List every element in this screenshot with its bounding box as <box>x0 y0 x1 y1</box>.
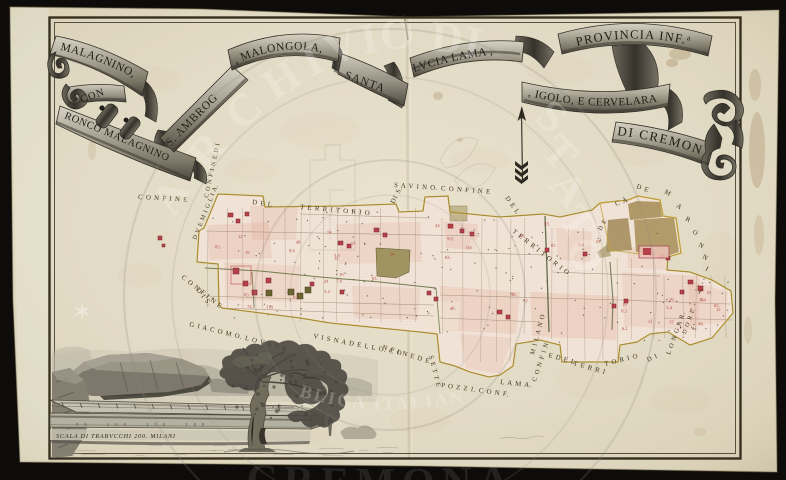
svg-text:83.: 83. <box>215 244 221 250</box>
svg-text:✶: ✶ <box>72 300 92 326</box>
svg-text:83.: 83. <box>448 225 454 230</box>
svg-text:3.4: 3.4 <box>324 289 330 294</box>
svg-text:12: 12 <box>334 256 339 261</box>
svg-text:SCALA DI TRABVCCHI 200. MILANI: SCALA DI TRABVCCHI 200. MILANI <box>56 433 176 440</box>
svg-text:6.2: 6.2 <box>293 294 300 299</box>
svg-text:110: 110 <box>266 304 274 310</box>
svg-text:83.: 83. <box>372 276 378 281</box>
svg-text:50. 100. 150. 200.: 50. 100. 150. 200. <box>76 422 217 427</box>
svg-text:3.4: 3.4 <box>666 305 673 310</box>
svg-text:83.: 83. <box>551 242 557 248</box>
svg-text:9.6: 9.6 <box>289 248 296 253</box>
svg-text:48.: 48. <box>511 292 517 297</box>
svg-text:83.: 83. <box>244 292 250 298</box>
svg-text:83.: 83. <box>445 255 451 260</box>
svg-text:48.: 48. <box>450 306 456 311</box>
svg-text:6.2: 6.2 <box>622 326 629 331</box>
svg-text:74.: 74. <box>247 304 253 309</box>
svg-text:48.: 48. <box>698 321 704 326</box>
svg-text:19: 19 <box>245 250 250 255</box>
svg-text:O: O <box>378 9 416 61</box>
svg-text:12: 12 <box>238 234 243 239</box>
svg-text:110: 110 <box>465 245 473 250</box>
svg-text:19: 19 <box>339 272 344 277</box>
svg-text:19: 19 <box>669 297 674 302</box>
svg-text:48.: 48. <box>295 239 301 245</box>
svg-text:83.: 83. <box>714 303 720 308</box>
svg-text:9.6: 9.6 <box>447 236 454 241</box>
svg-text:D: D <box>429 12 465 64</box>
svg-text:12: 12 <box>699 297 704 302</box>
